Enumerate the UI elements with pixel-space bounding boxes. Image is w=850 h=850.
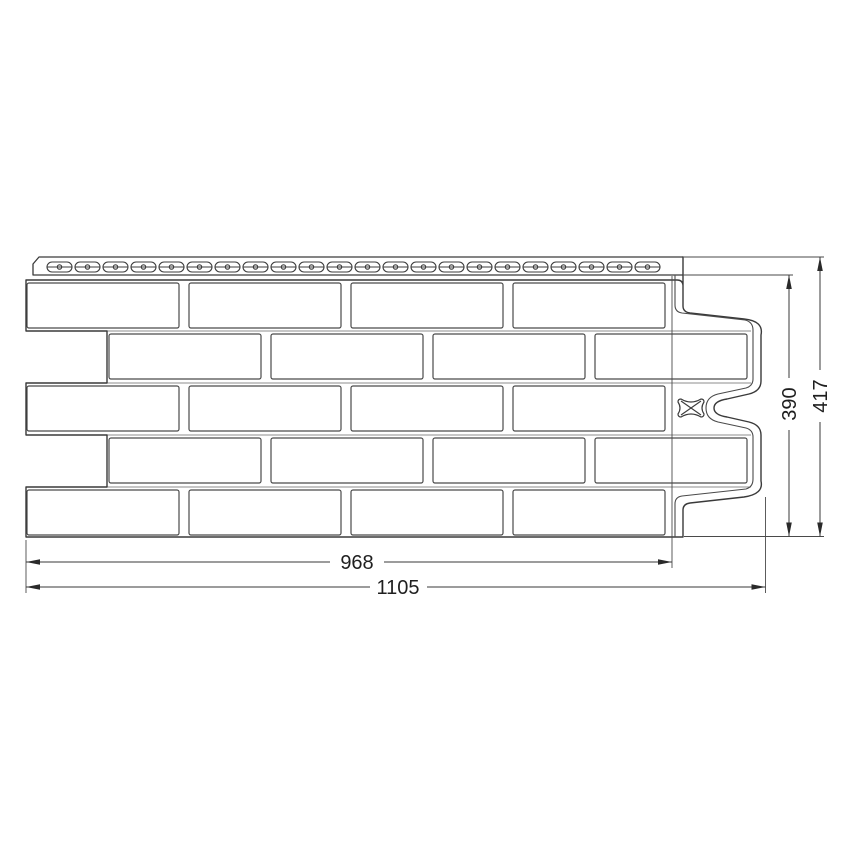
arrowhead-up: [817, 257, 823, 271]
nail-slot: [131, 262, 156, 272]
technical-drawing-canvas: 968 1105 390 417: [0, 0, 850, 850]
nail-slot: [439, 262, 464, 272]
arrowhead-down: [817, 523, 823, 537]
dimension-968: 968: [26, 552, 672, 574]
nail-slot: [523, 262, 548, 272]
brick: [271, 438, 423, 483]
brick: [351, 386, 503, 431]
brick: [513, 283, 665, 328]
brick: [189, 386, 341, 431]
brick: [189, 283, 341, 328]
nail-slot: [47, 262, 72, 272]
arrowhead-left: [26, 559, 40, 565]
nail-slot: [215, 262, 240, 272]
brick: [189, 490, 341, 535]
brick: [595, 334, 747, 379]
dimension-label-390: 390: [779, 387, 801, 420]
brick: [27, 490, 179, 535]
brick: [27, 386, 179, 431]
brick: [513, 386, 665, 431]
nail-slot: [635, 262, 660, 272]
brick: [109, 334, 261, 379]
nail-slot: [187, 262, 212, 272]
nail-slot: [159, 262, 184, 272]
nail-slot: [327, 262, 352, 272]
dimension-417: 417: [810, 257, 832, 537]
dimension-1105: 1105: [26, 577, 766, 599]
nail-slot: [271, 262, 296, 272]
arrowhead-right: [752, 584, 766, 590]
nail-slot: [243, 262, 268, 272]
nail-slot: [495, 262, 520, 272]
brick: [109, 438, 261, 483]
arrowhead-down: [786, 523, 792, 537]
arrowhead-up: [786, 275, 792, 289]
brick: [27, 283, 179, 328]
nail-slot: [411, 262, 436, 272]
nail-slot: [383, 262, 408, 272]
nail-slot: [607, 262, 632, 272]
nail-slot: [75, 262, 100, 272]
brick-pattern: [27, 283, 747, 535]
drawing-page: 968 1105 390 417: [0, 0, 850, 850]
brick: [351, 283, 503, 328]
dimension-label-968: 968: [340, 552, 373, 574]
arrowhead-right: [658, 559, 672, 565]
nail-slot: [551, 262, 576, 272]
brick: [513, 490, 665, 535]
dimension-label-1105: 1105: [376, 577, 419, 599]
nail-slot: [579, 262, 604, 272]
brick: [433, 438, 585, 483]
bowtie-mark: [678, 399, 704, 417]
brick: [271, 334, 423, 379]
arrowhead-left: [26, 584, 40, 590]
nail-slot: [467, 262, 492, 272]
brick: [351, 490, 503, 535]
nail-slot: [103, 262, 128, 272]
brick: [595, 438, 747, 483]
dimension-390: 390: [779, 275, 801, 537]
dimension-label-417: 417: [810, 379, 832, 412]
nail-slot: [355, 262, 380, 272]
nail-slots: [47, 262, 660, 272]
nail-slot: [299, 262, 324, 272]
brick: [433, 334, 585, 379]
